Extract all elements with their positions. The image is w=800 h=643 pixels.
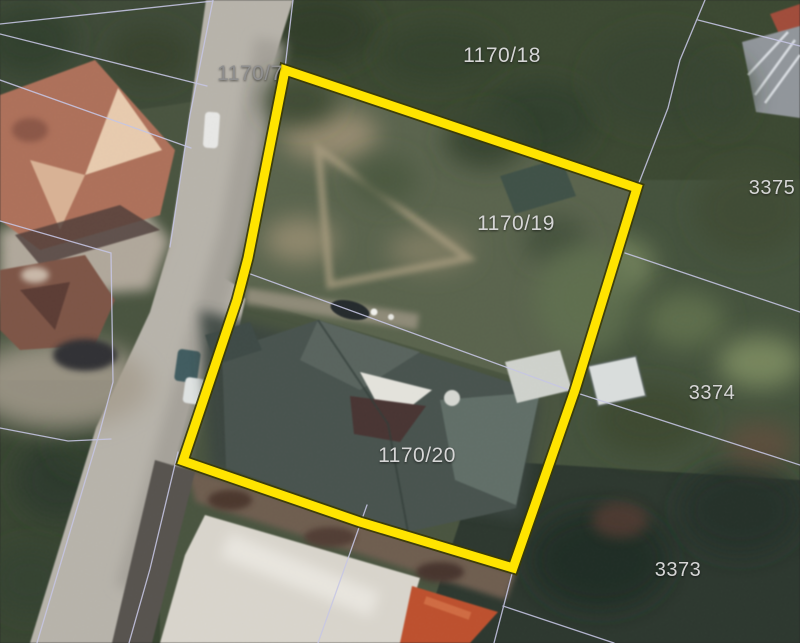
parcel-label-1170-18: 1170/18 bbox=[463, 44, 541, 67]
parcel-label-3375: 3375 bbox=[749, 177, 796, 199]
photo-grain bbox=[0, 0, 800, 643]
parcel-label-1170-7: 1170/7 bbox=[217, 62, 283, 85]
parcel-label-3373: 3373 bbox=[655, 559, 702, 581]
parcel-label-1170-20: 1170/20 bbox=[378, 444, 456, 467]
parcel-label-1170-19: 1170/19 bbox=[477, 212, 555, 235]
aerial-photo-layer bbox=[0, 0, 800, 643]
parcel-label-3374: 3374 bbox=[689, 382, 736, 404]
map-viewport[interactable]: 1170/71170/181170/191170/20337533743373 bbox=[0, 0, 800, 643]
map-canvas[interactable]: 1170/71170/181170/191170/20337533743373 bbox=[0, 0, 800, 643]
